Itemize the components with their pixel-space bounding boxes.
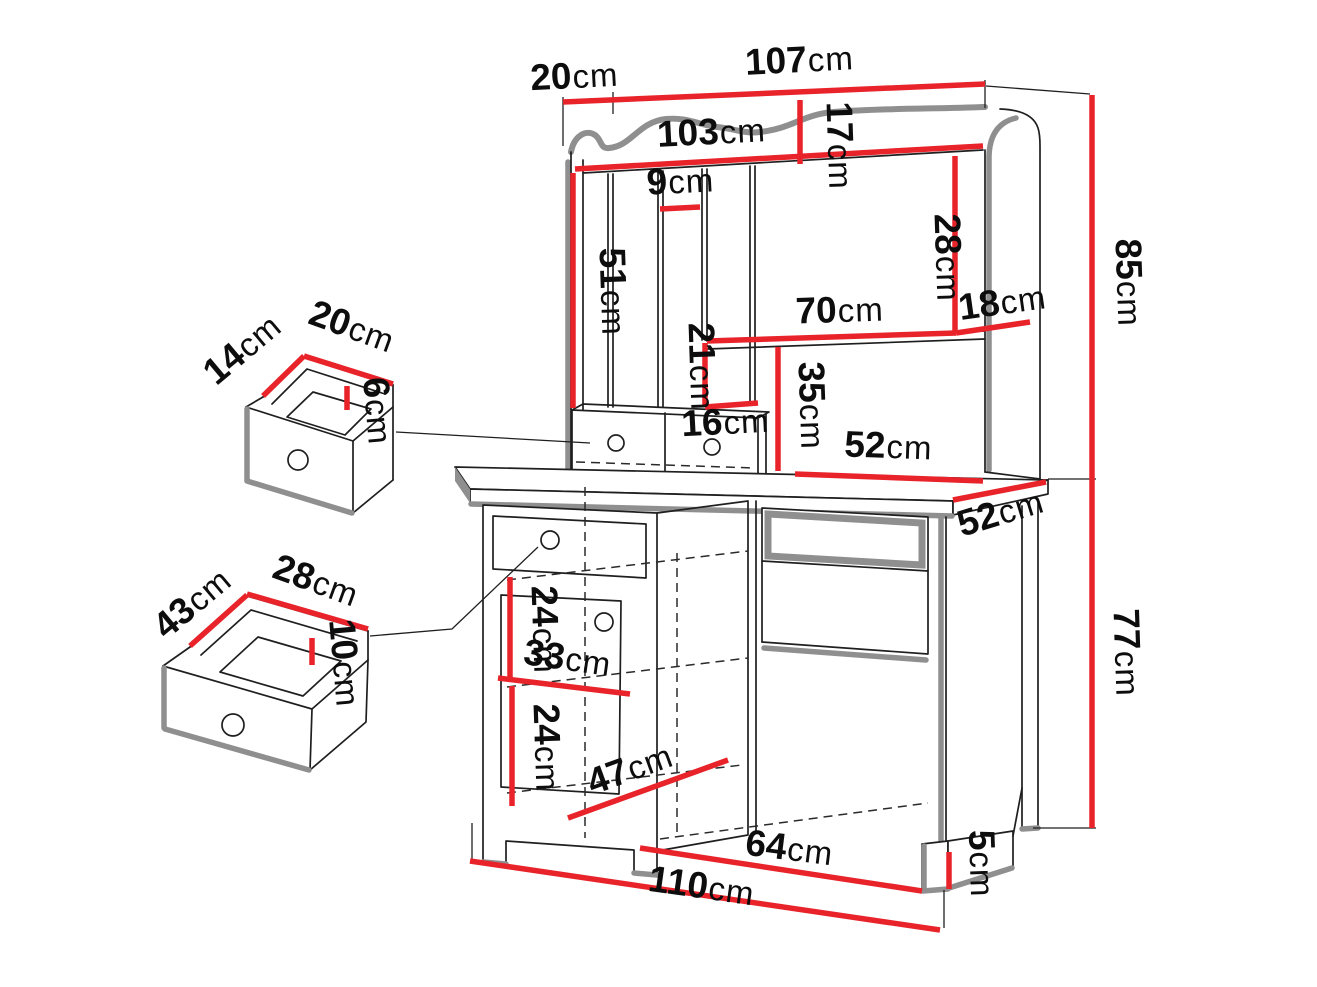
hutch-drawer-knob-left — [608, 435, 624, 451]
dim-label-cubby-slot: 9cm — [646, 158, 716, 202]
dim-label-desk-height: 77cm — [1105, 608, 1149, 698]
dim-label-hutch-top-depth: 20cm — [529, 53, 619, 99]
dim-label-leg-height: 5cm — [961, 829, 1004, 898]
large-drawer-knob — [222, 714, 244, 736]
dim-label-small-drawer-height: 6cm — [355, 375, 402, 446]
furniture-dimension-diagram: 20cm 107cm 103cm 17cm 9cm 51cm 28cm 70cm… — [0, 0, 1317, 987]
dim-label-left-cubby-height: 51cm — [591, 247, 635, 337]
dim-label-hutch-height: 85cm — [1107, 238, 1151, 328]
cabinet-drawer-knob — [541, 531, 559, 549]
dim-label-hutch-inner-width: 103cm — [656, 108, 767, 155]
dim-label-lower-gap: 24cm — [525, 703, 569, 793]
dim-label-niche-width: 16cm — [680, 399, 770, 445]
dim-line-cubby-slot — [660, 207, 700, 209]
dim-label-hutch-width: 107cm — [744, 36, 855, 83]
pencil-drawer-front — [768, 514, 922, 565]
small-drawer-knob — [288, 450, 308, 470]
dim-label-niche-height: 21cm — [680, 322, 724, 412]
dim-label-crown-height: 17cm — [818, 101, 862, 191]
diagram-canvas: 20cm 107cm 103cm 17cm 9cm 51cm 28cm 70cm… — [0, 0, 1317, 987]
dim-label-shelf-clear: 52cm — [844, 423, 934, 467]
cabinet-door-knob — [595, 613, 613, 631]
dim-label-open-height: 35cm — [790, 361, 834, 451]
dim-label-shelf-length: 70cm — [795, 287, 885, 331]
